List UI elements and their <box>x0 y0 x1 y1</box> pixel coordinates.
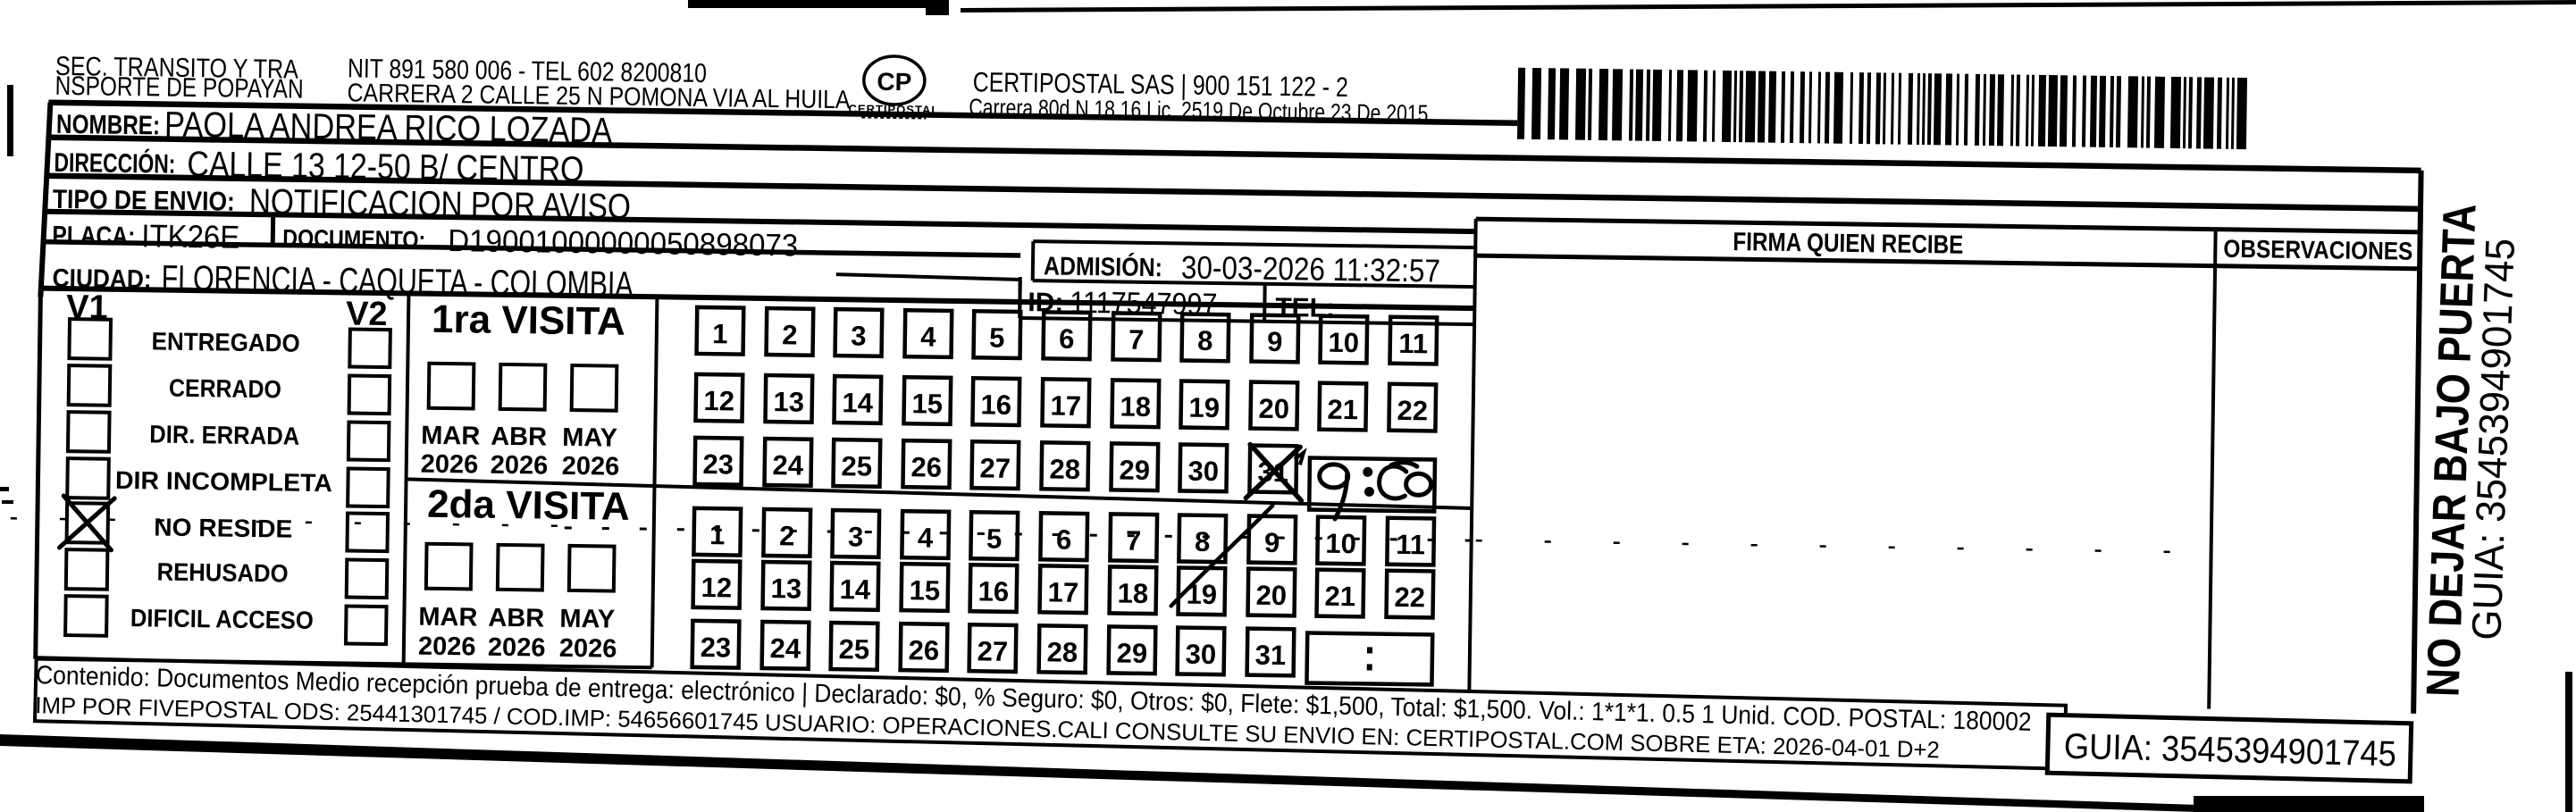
svg-text:PLACA:: PLACA: <box>52 222 135 251</box>
svg-text:2026: 2026 <box>418 632 476 662</box>
svg-text:12: 12 <box>703 385 734 416</box>
svg-text:16: 16 <box>980 389 1011 420</box>
svg-text:23: 23 <box>700 632 731 663</box>
svg-text:GUIA: 3545394901745: GUIA: 3545394901745 <box>2063 727 2396 774</box>
svg-text:25: 25 <box>841 450 872 481</box>
svg-text:21: 21 <box>1324 581 1355 612</box>
svg-text:12: 12 <box>701 572 732 603</box>
svg-text:4: 4 <box>918 522 934 553</box>
svg-text:17: 17 <box>1047 576 1078 607</box>
svg-text:9: 9 <box>1267 326 1283 357</box>
svg-text:18: 18 <box>1117 578 1148 609</box>
svg-text:ABR: ABR <box>491 423 547 452</box>
svg-text:FIRMA QUIEN RECIBE: FIRMA QUIEN RECIBE <box>1733 228 1963 260</box>
svg-text:19: 19 <box>1186 579 1217 610</box>
svg-text:NSPORTE DE POPAYAN: NSPORTE DE POPAYAN <box>55 71 303 105</box>
svg-text:13: 13 <box>770 573 801 604</box>
svg-text:1ra VISITA: 1ra VISITA <box>432 297 625 344</box>
svg-text:9: 9 <box>1264 527 1280 558</box>
svg-text:OBSERVACIONES: OBSERVACIONES <box>2223 235 2412 265</box>
svg-text:2da VISITA: 2da VISITA <box>427 482 630 529</box>
svg-text:REHUSADO: REHUSADO <box>156 558 288 588</box>
svg-text:DIR INCOMPLETA: DIR INCOMPLETA <box>115 466 332 497</box>
svg-text:26: 26 <box>910 451 942 482</box>
svg-text:MAY: MAY <box>559 605 615 634</box>
svg-text:29: 29 <box>1119 455 1150 486</box>
svg-text:ENTREGADO: ENTREGADO <box>151 327 299 356</box>
svg-text:3: 3 <box>848 521 864 552</box>
svg-text:ABR: ABR <box>488 604 544 633</box>
svg-text:10: 10 <box>1325 528 1356 559</box>
svg-text:21: 21 <box>1327 394 1358 425</box>
svg-text:17: 17 <box>1050 389 1081 421</box>
svg-text:7: 7 <box>1129 324 1145 356</box>
svg-text:24: 24 <box>769 632 801 664</box>
svg-text:CERRADO: CERRADO <box>169 374 281 404</box>
svg-text:2026: 2026 <box>559 634 617 664</box>
svg-text:26: 26 <box>908 634 939 666</box>
svg-text:10: 10 <box>1328 327 1359 358</box>
svg-text:13: 13 <box>773 386 804 417</box>
svg-text:6: 6 <box>1056 524 1072 556</box>
svg-text:27: 27 <box>979 452 1011 483</box>
svg-text:30: 30 <box>1185 639 1216 670</box>
svg-text:NO RESIDE: NO RESIDE <box>154 513 292 542</box>
svg-text:25: 25 <box>838 633 869 665</box>
svg-text:18: 18 <box>1120 391 1151 423</box>
svg-text:31: 31 <box>1254 640 1286 671</box>
svg-text:27: 27 <box>977 635 1008 666</box>
svg-text:CP: CP <box>877 68 911 96</box>
svg-text:MAY: MAY <box>562 423 617 453</box>
svg-text:2026: 2026 <box>562 452 620 481</box>
svg-text:22: 22 <box>1397 395 1428 426</box>
svg-text:14: 14 <box>842 387 874 418</box>
svg-text:ADMISIÓN:: ADMISIÓN: <box>1044 250 1162 282</box>
svg-text:3: 3 <box>851 320 867 351</box>
svg-text:ITK26E: ITK26E <box>141 217 240 255</box>
svg-text:20: 20 <box>1258 393 1289 424</box>
svg-text:DIFICIL ACCESO: DIFICIL ACCESO <box>130 604 314 634</box>
svg-text:23: 23 <box>702 448 734 480</box>
svg-text:28: 28 <box>1046 636 1078 667</box>
svg-text:22: 22 <box>1394 582 1425 613</box>
svg-text:2: 2 <box>782 319 798 350</box>
svg-text:2026: 2026 <box>488 633 546 663</box>
svg-text:MAR: MAR <box>421 422 481 451</box>
svg-text:MAR: MAR <box>418 603 478 632</box>
svg-text:11: 11 <box>1396 529 1425 560</box>
svg-text:15: 15 <box>911 388 943 419</box>
svg-text:4: 4 <box>920 321 936 352</box>
svg-text:DIR. ERRADA: DIR. ERRADA <box>149 420 299 449</box>
svg-text:15: 15 <box>909 574 940 606</box>
svg-text:6: 6 <box>1059 323 1075 355</box>
svg-text:29: 29 <box>1116 638 1147 669</box>
svg-text:1: 1 <box>712 318 728 349</box>
svg-text:8: 8 <box>1197 325 1213 356</box>
svg-text:2026: 2026 <box>491 451 549 481</box>
svg-text:8: 8 <box>1195 526 1211 557</box>
svg-text:5: 5 <box>986 523 1003 554</box>
svg-text:19: 19 <box>1188 392 1220 423</box>
svg-text:14: 14 <box>839 573 871 605</box>
svg-text:30: 30 <box>1187 456 1219 487</box>
svg-text:2: 2 <box>779 520 795 551</box>
svg-text:7: 7 <box>1126 525 1142 557</box>
svg-text:1: 1 <box>709 519 726 550</box>
svg-text:2026: 2026 <box>421 450 479 480</box>
svg-text:24: 24 <box>772 449 804 481</box>
svg-text:16: 16 <box>978 575 1009 607</box>
svg-text:20: 20 <box>1255 580 1287 611</box>
svg-text:5: 5 <box>989 322 1005 353</box>
svg-text:11: 11 <box>1398 328 1428 359</box>
svg-text:D19001000000050898073: D19001000000050898073 <box>448 223 799 263</box>
svg-text:28: 28 <box>1049 453 1080 484</box>
